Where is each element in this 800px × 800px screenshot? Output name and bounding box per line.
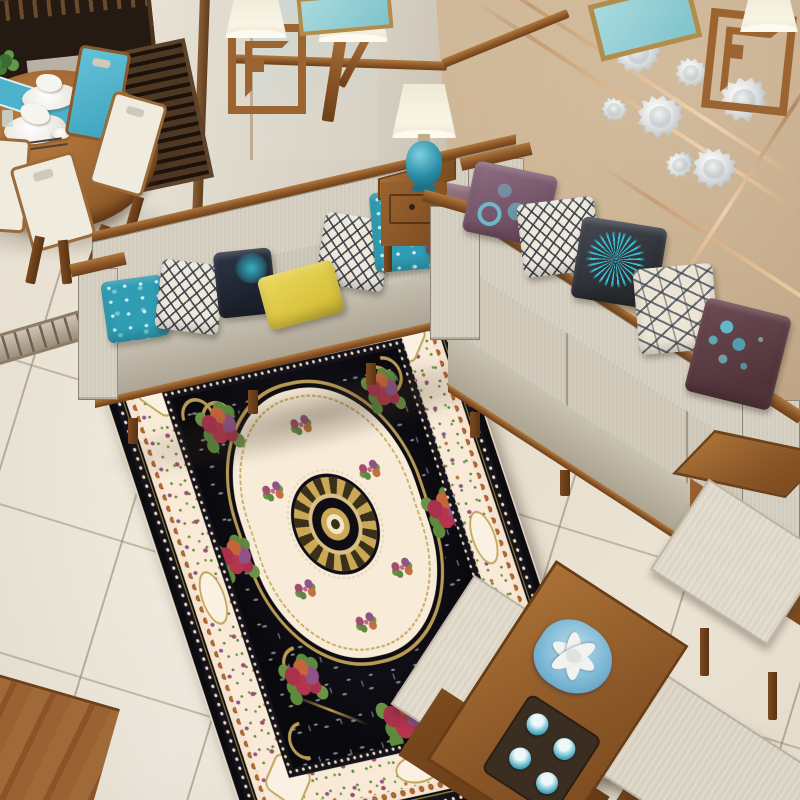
- lamp-teal-base: [406, 141, 442, 187]
- seat-seam: [566, 333, 568, 408]
- teacup: [532, 768, 562, 798]
- lotus-plate: [522, 607, 626, 708]
- chair-handle-slot: [92, 58, 111, 69]
- tea-tray: [481, 693, 603, 800]
- lamp-shade: [225, 0, 287, 38]
- rug-medallion-scroll: [277, 638, 323, 693]
- sofa-leg: [470, 412, 480, 438]
- lattice-transom: [0, 0, 147, 22]
- chair-handle-slot: [32, 168, 54, 182]
- teacup: [522, 709, 552, 739]
- table-leg: [700, 628, 709, 676]
- drawer-knob: [409, 204, 415, 210]
- folded-napkin: [36, 74, 62, 92]
- sofa-leg: [128, 418, 138, 444]
- sofa-leg: [560, 470, 570, 496]
- sofa-leg: [248, 390, 258, 414]
- lamp-shade: [740, 0, 798, 32]
- chair-handle-slot: [125, 105, 145, 118]
- rug-bouquet: [231, 554, 240, 563]
- teacup: [505, 743, 535, 773]
- rug-bouquet: [440, 507, 450, 517]
- table-leg: [384, 246, 392, 272]
- drinking-glass: [2, 110, 13, 127]
- teacup: [549, 734, 579, 764]
- sofa-leg: [366, 363, 376, 385]
- living-room-photo: [0, 0, 800, 800]
